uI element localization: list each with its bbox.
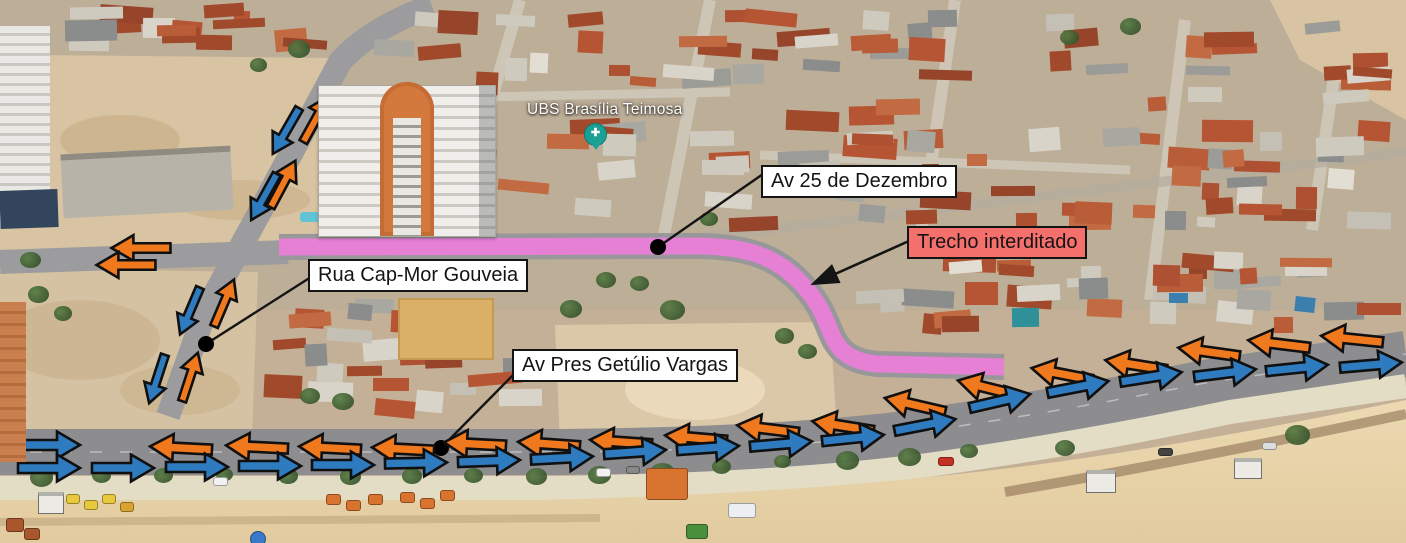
beach-tent [686,524,708,539]
beach-kiosk [38,492,64,514]
sunshade [24,528,40,540]
beach-tent [646,468,688,500]
car [1158,448,1173,456]
sunshade [420,498,435,509]
sunshade [326,494,341,505]
tan-roof-building [398,298,494,360]
van [728,503,756,518]
label-av-25-de-dezembro: Av 25 de Dezembro [761,165,957,198]
labels-layer: UBS Brasília Teimosa ✚ Av 25 de Dezembro… [0,0,1406,543]
orange-tower-building [0,302,26,462]
sunshade [400,492,415,503]
sunshade [440,490,455,501]
boat [120,502,134,512]
umbrella [250,531,266,543]
car [596,468,611,477]
sunshade [346,500,361,511]
car [938,457,954,466]
car [213,477,228,486]
car [626,466,640,474]
highrise-arch [380,82,434,236]
beach-kiosk [1234,458,1262,479]
boat [102,494,116,504]
navy-roof-building [0,189,59,229]
boat [84,500,98,510]
sunshade [6,518,24,532]
label-rua-cap-mor-gouveia: Rua Cap-Mor Gouveia [308,259,528,292]
map-place-label-ubs: UBS Brasília Teimosa [527,101,683,119]
car [1262,442,1277,450]
highrise-building [318,85,496,237]
sunshade [368,494,383,505]
beach-kiosk [1086,470,1116,493]
label-trecho-interditado: Trecho interditado [907,226,1087,259]
boat [66,494,80,504]
aerial-map-figure[interactable]: UBS Brasília Teimosa ✚ Av 25 de Dezembro… [0,0,1406,543]
label-av-pres-getulio-vargas: Av Pres Getúlio Vargas [512,349,738,382]
health-facility-pin-icon[interactable]: ✚ [584,123,607,146]
gray-warehouse [60,146,233,219]
